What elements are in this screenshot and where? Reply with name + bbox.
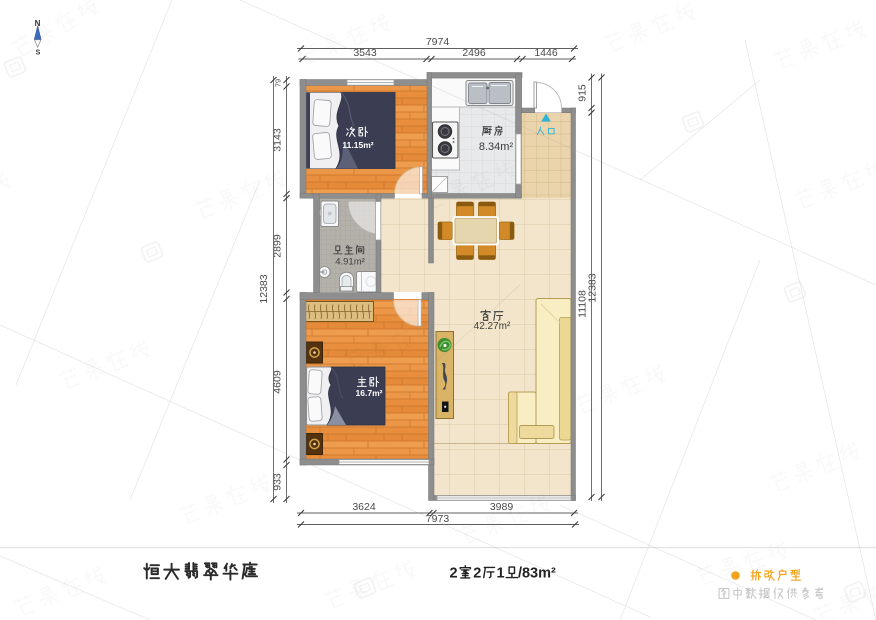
svg-text:2: 2 xyxy=(449,566,457,582)
svg-text:3624: 3624 xyxy=(352,501,376,513)
svg-text:11.15m²: 11.15m² xyxy=(342,140,373,150)
svg-text:/83m²: /83m² xyxy=(518,566,556,582)
svg-text:8.34m²: 8.34m² xyxy=(479,141,514,153)
svg-text:2: 2 xyxy=(473,566,481,582)
svg-text:16.7m²: 16.7m² xyxy=(356,388,383,398)
svg-text:915: 915 xyxy=(577,84,589,102)
svg-text:7973: 7973 xyxy=(426,513,450,525)
svg-text:1: 1 xyxy=(497,566,505,582)
svg-text:2496: 2496 xyxy=(462,47,486,59)
svg-text:79: 79 xyxy=(274,79,283,87)
svg-text:1446: 1446 xyxy=(534,47,558,59)
svg-text:12383: 12383 xyxy=(587,273,599,302)
svg-text:3543: 3543 xyxy=(353,47,377,59)
svg-text:12383: 12383 xyxy=(258,274,270,303)
svg-text:S: S xyxy=(36,50,41,57)
svg-text:7974: 7974 xyxy=(426,36,450,48)
